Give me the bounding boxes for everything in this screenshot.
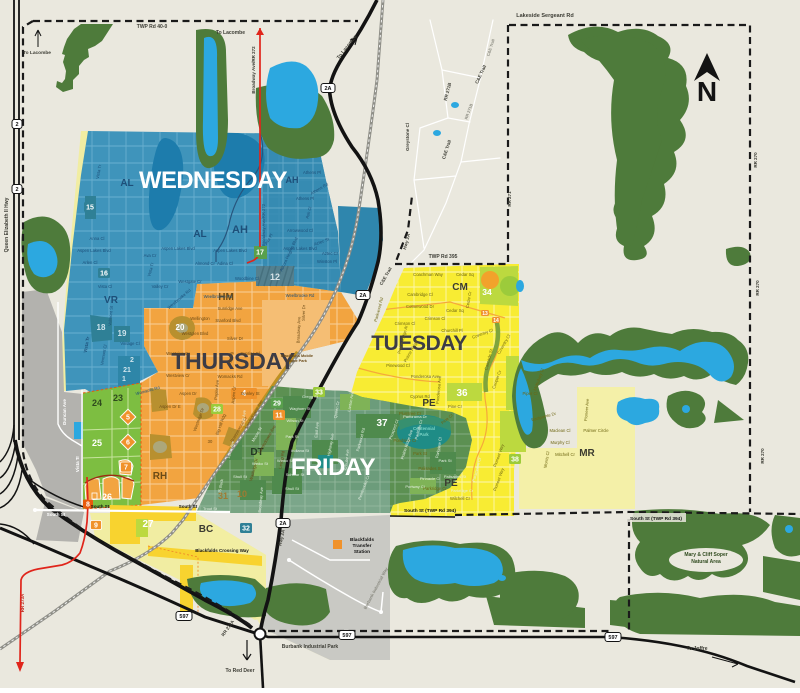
svg-text:26: 26	[102, 492, 112, 502]
svg-text:Mary & Cliff Soper: Mary & Cliff Soper	[684, 552, 727, 558]
svg-text:2A: 2A	[359, 293, 366, 299]
svg-text:Winston Pl: Winston Pl	[317, 259, 337, 264]
svg-text:Maclean Cl: Maclean Cl	[550, 428, 571, 433]
svg-text:19: 19	[118, 329, 127, 338]
svg-text:Lakeside Sergeant Rd: Lakeside Sergeant Rd	[516, 13, 573, 19]
svg-text:South St: South St	[179, 504, 198, 509]
svg-text:16: 16	[100, 271, 108, 278]
svg-text:Blackfalds: Blackfalds	[350, 537, 374, 543]
svg-text:Waghorn St: Waghorn St	[290, 406, 312, 411]
svg-text:Aztec Cr: Aztec Cr	[322, 251, 339, 256]
svg-text:Ponderosa Ave: Ponderosa Ave	[411, 374, 440, 379]
svg-text:RH: RH	[153, 471, 167, 482]
svg-text:Broadway Ave/RR 272: Broadway Ave/RR 272	[261, 203, 266, 246]
svg-text:2: 2	[15, 122, 18, 128]
svg-text:AL: AL	[120, 178, 133, 189]
svg-text:9: 9	[94, 523, 98, 530]
svg-text:Transfer: Transfer	[353, 543, 372, 549]
svg-text:32: 32	[242, 526, 250, 533]
svg-text:Blackfalds Crossing Way: Blackfalds Crossing Way	[195, 548, 249, 553]
svg-text:Burbank Industrial Park: Burbank Industrial Park	[282, 644, 339, 650]
svg-text:2A: 2A	[279, 521, 286, 527]
svg-text:MR: MR	[579, 448, 595, 459]
svg-text:Cedar Sq: Cedar Sq	[446, 308, 464, 313]
svg-text:Anna Cl: Anna Cl	[90, 236, 105, 241]
svg-text:Piper Cl: Piper Cl	[523, 391, 538, 396]
svg-text:Vista Cl: Vista Cl	[98, 284, 112, 289]
svg-text:Sunrise Cl: Sunrise Cl	[240, 351, 259, 356]
svg-text:Park St: Park St	[413, 451, 428, 456]
svg-text:30: 30	[208, 439, 213, 444]
svg-text:Churchill Pl: Churchill Pl	[441, 328, 462, 333]
svg-text:15: 15	[86, 205, 94, 212]
svg-text:Silver Dr: Silver Dr	[227, 336, 244, 341]
svg-text:Stanley St: Stanley St	[240, 391, 260, 396]
svg-text:Murphy Cl: Murphy Cl	[550, 440, 569, 445]
svg-text:AL: AL	[193, 229, 206, 240]
svg-text:Woodbine Cl: Woodbine Cl	[235, 276, 259, 281]
svg-text:Coachman Way: Coachman Way	[413, 272, 444, 277]
svg-text:To Lacombe: To Lacombe	[23, 50, 51, 56]
svg-text:South St: South St	[91, 504, 110, 509]
svg-text:THURSDAY: THURSDAY	[171, 348, 295, 374]
svg-text:6: 6	[126, 440, 130, 447]
svg-text:10: 10	[237, 489, 247, 499]
svg-text:Palisades St: Palisades St	[418, 466, 442, 471]
svg-text:RR 270: RR 270	[760, 448, 765, 464]
svg-text:23: 23	[113, 393, 123, 403]
svg-text:Palisades St: Palisades St	[444, 474, 467, 479]
svg-text:7: 7	[124, 465, 128, 472]
svg-text:34: 34	[482, 287, 492, 297]
svg-text:Portway Cl: Portway Cl	[405, 484, 424, 489]
svg-text:Aspen Dr E: Aspen Dr E	[159, 404, 181, 409]
svg-text:AH: AH	[286, 175, 299, 185]
svg-text:Pinewood Cl: Pinewood Cl	[386, 363, 410, 368]
svg-text:36: 36	[456, 388, 468, 399]
svg-text:2A: 2A	[324, 86, 331, 92]
svg-text:BC: BC	[199, 524, 213, 535]
svg-text:Westgate Cr: Westgate Cr	[178, 279, 202, 284]
svg-text:Shull St: Shull St	[233, 474, 248, 479]
svg-text:1: 1	[122, 376, 126, 383]
svg-text:Aspen Lakes Blvd: Aspen Lakes Blvd	[77, 248, 111, 253]
svg-text:Athens Pl: Athens Pl	[296, 196, 314, 201]
svg-text:Pine Cr: Pine Cr	[448, 404, 463, 409]
svg-text:18: 18	[97, 323, 106, 332]
svg-text:RR 270: RR 270	[755, 280, 760, 296]
svg-text:27: 27	[142, 519, 154, 530]
svg-text:Cambridge Cl: Cambridge Cl	[407, 292, 433, 297]
svg-text:597: 597	[608, 635, 617, 641]
svg-text:Adina Cl: Adina Cl	[217, 261, 233, 266]
svg-text:Natural Area: Natural Area	[691, 559, 721, 565]
svg-text:Vintage Cl: Vintage Cl	[120, 341, 139, 346]
svg-text:TWP Rd 395: TWP Rd 395	[429, 254, 458, 260]
svg-text:11: 11	[275, 413, 283, 420]
svg-text:Schular St: Schular St	[286, 472, 305, 477]
svg-text:To Lacombe: To Lacombe	[216, 30, 245, 36]
svg-text:Westview Cr: Westview Cr	[166, 373, 190, 378]
svg-text:TWP Rd 40-0: TWP Rd 40-0	[137, 24, 168, 30]
svg-text:To Red Deer: To Red Deer	[225, 668, 254, 674]
svg-text:Cyprus Rd: Cyprus Rd	[410, 394, 430, 399]
svg-text:Westglen Blvd: Westglen Blvd	[182, 331, 209, 336]
svg-text:Duncan Ave: Duncan Ave	[62, 399, 67, 425]
svg-text:RR 273A: RR 273A	[20, 593, 25, 612]
svg-text:Queen Elizabeth II Hwy: Queen Elizabeth II Hwy	[4, 197, 10, 252]
svg-text:25: 25	[92, 438, 102, 448]
svg-text:Aspen Dr: Aspen Dr	[179, 391, 197, 396]
svg-text:28: 28	[213, 407, 221, 414]
svg-text:8: 8	[86, 502, 90, 509]
svg-text:Gregg St: Gregg St	[302, 394, 319, 399]
svg-text:Blackfalds Mobile: Blackfalds Mobile	[281, 354, 313, 358]
svg-text:29: 29	[273, 401, 281, 408]
svg-text:Westview Cr: Westview Cr	[166, 351, 190, 356]
svg-text:Mitchell Cr: Mitchell Cr	[555, 452, 575, 457]
svg-text:Winko St: Winko St	[277, 458, 294, 463]
svg-text:Station: Station	[354, 549, 370, 555]
svg-text:21: 21	[123, 367, 131, 374]
svg-text:Broadway Ave/RR 272: Broadway Ave/RR 272	[251, 46, 256, 94]
svg-text:Weelbrooke Rd: Weelbrooke Rd	[286, 293, 315, 298]
svg-text:WEDNESDAY: WEDNESDAY	[139, 167, 288, 194]
svg-text:Shull St: Shull St	[285, 486, 300, 491]
svg-text:N: N	[697, 76, 717, 107]
svg-text:Aspen Lakes Blvd: Aspen Lakes Blvd	[161, 246, 195, 251]
svg-text:Valley Cr: Valley Cr	[152, 284, 169, 289]
svg-text:38: 38	[511, 457, 519, 464]
svg-text:Aspen Lakes Blvd: Aspen Lakes Blvd	[213, 248, 247, 253]
svg-text:Trout St: Trout St	[203, 506, 218, 511]
svg-text:13: 13	[482, 311, 488, 317]
svg-text:Park St: Park St	[438, 458, 452, 463]
svg-text:AH: AH	[232, 224, 248, 236]
svg-text:Parkridge Cr: Parkridge Cr	[423, 486, 447, 491]
svg-text:South St (TWP Rd 394): South St (TWP Rd 394)	[630, 516, 682, 522]
svg-text:5: 5	[126, 415, 130, 422]
svg-text:Almond Cr: Almond Cr	[195, 261, 215, 266]
svg-text:597: 597	[179, 614, 188, 620]
svg-text:Parkridge Cr: Parkridge Cr	[451, 488, 474, 493]
svg-text:Silver Dr: Silver Dr	[301, 304, 307, 321]
svg-text:Ava Cr: Ava Cr	[144, 253, 157, 258]
svg-text:2: 2	[130, 357, 134, 364]
svg-text:Weelbrooke Rd: Weelbrooke Rd	[204, 294, 233, 299]
svg-text:Stanford Blvd: Stanford Blvd	[215, 318, 241, 323]
svg-text:Home Park: Home Park	[287, 359, 308, 363]
svg-text:Vista Tr: Vista Tr	[75, 456, 80, 472]
svg-text:Arrowwood Cl: Arrowwood Cl	[287, 228, 313, 233]
svg-text:South St: South St	[47, 512, 66, 517]
svg-text:Womacks Rd: Womacks Rd	[218, 374, 243, 379]
svg-text:Park St: Park St	[285, 434, 299, 439]
svg-text:Panorama Dr: Panorama Dr	[403, 414, 427, 419]
svg-text:Park: Park	[419, 432, 429, 437]
svg-text:Palmer Circle: Palmer Circle	[583, 428, 609, 433]
svg-text:CM: CM	[452, 282, 468, 293]
svg-text:14: 14	[493, 318, 499, 324]
svg-text:Winko St: Winko St	[252, 461, 269, 466]
svg-text:Pinnacle Cl: Pinnacle Cl	[420, 476, 440, 481]
svg-text:South St (TWP Rd 394): South St (TWP Rd 394)	[404, 508, 456, 514]
svg-text:37: 37	[376, 418, 388, 429]
svg-text:Wellington: Wellington	[190, 316, 210, 321]
svg-text:Sunridge Ave: Sunridge Ave	[218, 306, 244, 311]
svg-text:To Joffre: To Joffre	[686, 646, 707, 652]
svg-text:17: 17	[256, 250, 264, 257]
svg-text:Wilchell Cr: Wilchell Cr	[450, 496, 471, 501]
svg-text:RR 271: RR 271	[507, 191, 512, 207]
svg-text:RR 270: RR 270	[753, 152, 758, 168]
svg-text:VR: VR	[104, 295, 119, 306]
svg-text:24: 24	[92, 398, 102, 408]
svg-text:Cedar Sq: Cedar Sq	[456, 272, 474, 277]
svg-text:Indiana St: Indiana St	[291, 448, 310, 453]
svg-text:Wilson St: Wilson St	[287, 418, 305, 423]
svg-text:Athens Pl: Athens Pl	[303, 170, 321, 175]
svg-text:Crimson Cl: Crimson Cl	[425, 316, 446, 321]
svg-text:Arlen Cl: Arlen Cl	[83, 260, 98, 265]
svg-text:TUESDAY: TUESDAY	[371, 332, 467, 355]
svg-text:597: 597	[342, 633, 351, 639]
svg-text:2: 2	[15, 187, 18, 193]
svg-text:12: 12	[270, 272, 280, 282]
svg-text:Cottonwood Dr: Cottonwood Dr	[406, 304, 435, 309]
svg-text:Greystone Cl: Greystone Cl	[405, 123, 410, 151]
